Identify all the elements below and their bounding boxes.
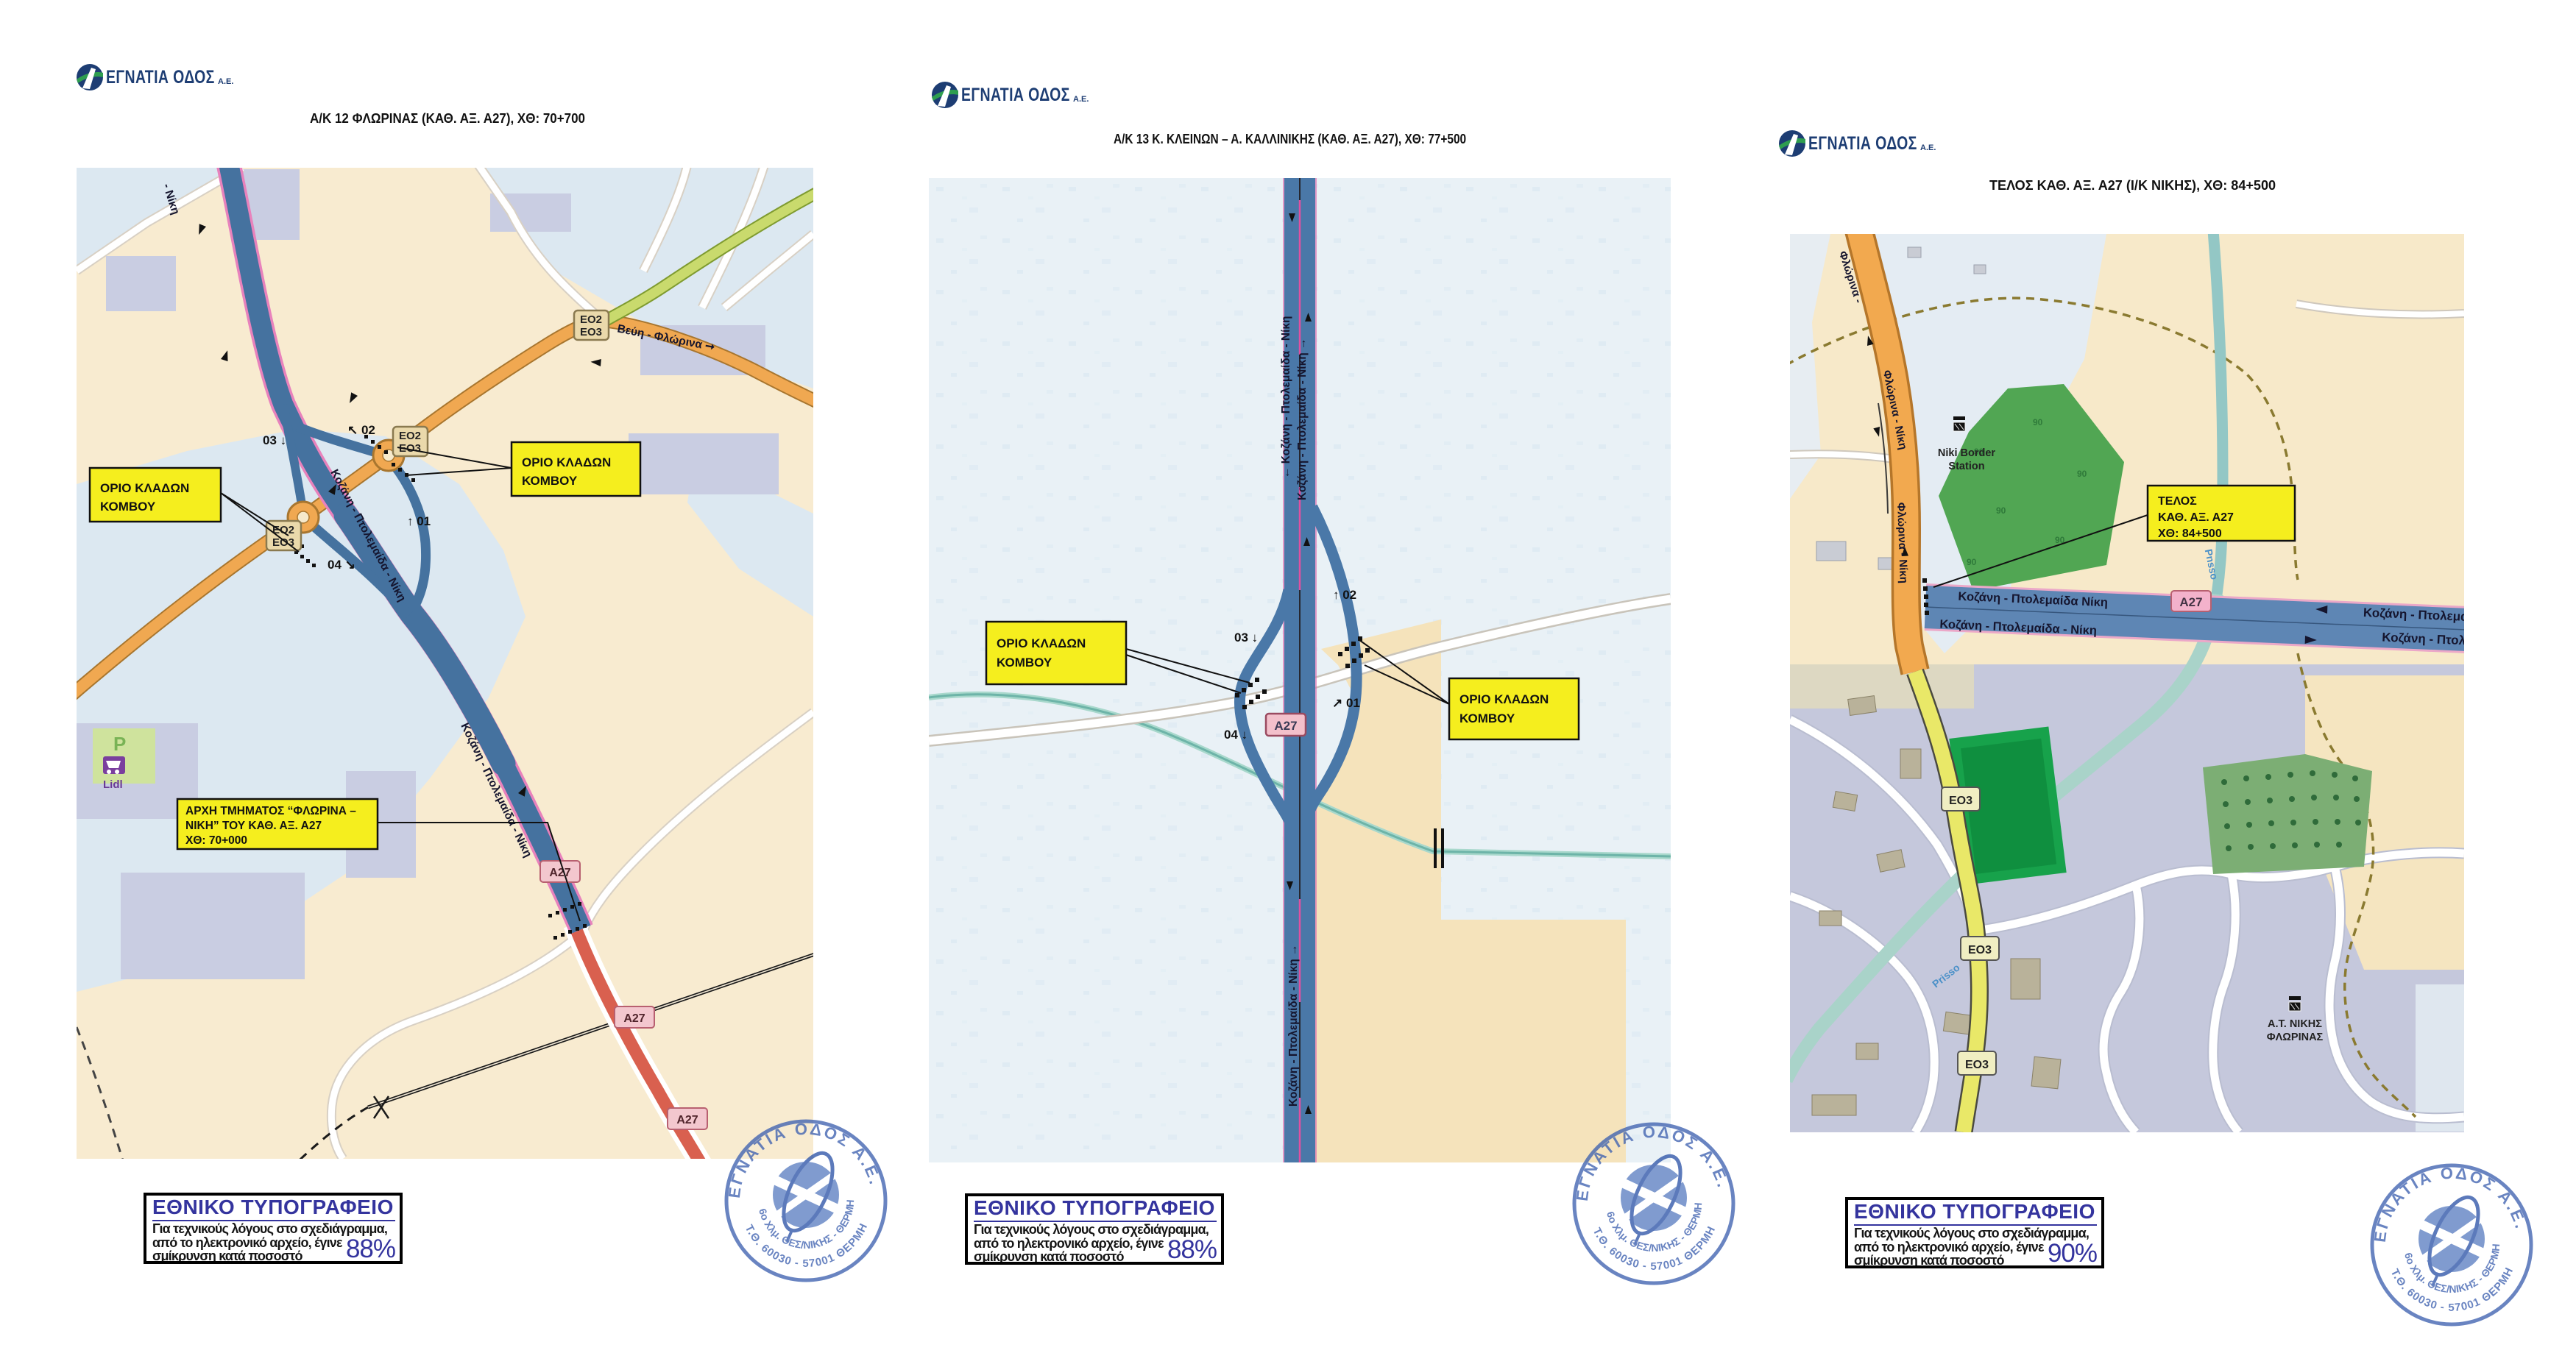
svg-text:Station: Station (1948, 461, 1984, 472)
svg-text:ΕΟ3: ΕΟ3 (272, 536, 294, 549)
svg-text:Κοζάνη - Πτολεμαίδα - Νίκη →: Κοζάνη - Πτολεμαίδα - Νίκη → (1287, 944, 1300, 1107)
svg-text:Κοζάνη - Πτολεμαίδα - Νίκη →: Κοζάνη - Πτολεμαίδα - Νίκη → (1296, 338, 1309, 500)
svg-text:ΚΟΜΒΟΥ: ΚΟΜΒΟΥ (100, 500, 156, 514)
svg-text:Α27: Α27 (1274, 719, 1297, 733)
svg-text:Α.Ε.: Α.Ε. (1920, 143, 1936, 152)
svg-text:ΕΟ3: ΕΟ3 (580, 326, 602, 338)
svg-text:ΝΙΚΗ” ΤΟΥ ΚΑΘ. ΑΞ. Α27: ΝΙΚΗ” ΤΟΥ ΚΑΘ. ΑΞ. Α27 (185, 820, 322, 832)
svg-text:P: P (113, 733, 126, 755)
svg-text:ΚΟΜΒΟΥ: ΚΟΜΒΟΥ (1459, 711, 1515, 725)
svg-text:ΧΘ: 84+500: ΧΘ: 84+500 (2158, 528, 2222, 540)
svg-text:Niki Border: Niki Border (1938, 447, 1996, 459)
svg-text:ΚΟΜΒΟΥ: ΚΟΜΒΟΥ (522, 474, 578, 488)
svg-text:ΕΟ3: ΕΟ3 (1965, 1059, 1989, 1071)
svg-text:ΕΓΝΑΤΙΑ ΟΔΟΣ: ΕΓΝΑΤΙΑ ΟΔΟΣ (1808, 133, 1917, 154)
svg-text:ΕΟ2: ΕΟ2 (399, 430, 421, 442)
svg-text:ΟΡΙΟ ΚΛΑΔΩΝ: ΟΡΙΟ ΚΛΑΔΩΝ (522, 455, 611, 469)
svg-text:ΕΓΝΑΤΙΑ ΟΔΟΣ: ΕΓΝΑΤΙΑ ΟΔΟΣ (961, 85, 1070, 105)
svg-text:ΕΟ3: ΕΟ3 (1949, 795, 1972, 807)
svg-text:04 ↘: 04 ↘ (328, 558, 355, 572)
svg-text:ΧΘ: 70+000: ΧΘ: 70+000 (185, 834, 247, 847)
svg-text:Α27: Α27 (2179, 595, 2202, 609)
svg-text:ΚΟΜΒΟΥ: ΚΟΜΒΟΥ (997, 656, 1052, 670)
svg-text:ΕΟ3: ΕΟ3 (1968, 944, 1992, 956)
svg-text:ΕΓΝΑΤΙΑ ΟΔΟΣ: ΕΓΝΑΤΙΑ ΟΔΟΣ (106, 67, 215, 88)
svg-text:Α27: Α27 (623, 1012, 645, 1025)
svg-text:↗ 01: ↗ 01 (1332, 696, 1360, 710)
svg-text:03 ↓: 03 ↓ (263, 433, 286, 447)
svg-text:90: 90 (2033, 417, 2043, 427)
svg-text:Α.Ε.: Α.Ε. (1073, 95, 1089, 104)
svg-text:90: 90 (2077, 469, 2087, 479)
svg-text:ΟΡΙΟ ΚΛΑΔΩΝ: ΟΡΙΟ ΚΛΑΔΩΝ (1459, 692, 1549, 706)
svg-text:Α27: Α27 (676, 1114, 698, 1126)
svg-text:Α27: Α27 (549, 867, 570, 879)
svg-text:90: 90 (1967, 557, 1977, 567)
svg-text:↑ 01: ↑ 01 (407, 514, 431, 528)
svg-text:ΦΛΩΡΙΝΑΣ: ΦΛΩΡΙΝΑΣ (2267, 1032, 2324, 1043)
svg-text:90: 90 (1996, 505, 2006, 516)
svg-text:ΑΡΧΗ ΤΜΗΜΑΤΟΣ “ΦΛΩΡΙΝΑ –: ΑΡΧΗ ΤΜΗΜΑΤΟΣ “ΦΛΩΡΙΝΑ – (185, 805, 356, 817)
svg-text:ΟΡΙΟ ΚΛΑΔΩΝ: ΟΡΙΟ ΚΛΑΔΩΝ (997, 636, 1086, 650)
svg-text:↑ 02: ↑ 02 (1333, 588, 1356, 602)
svg-text:ΚΑΘ. ΑΞ. Α27: ΚΑΘ. ΑΞ. Α27 (2158, 511, 2234, 524)
svg-text:04 ↓: 04 ↓ (1224, 728, 1248, 742)
svg-text:Α.Τ. ΝΙΚΗΣ: Α.Τ. ΝΙΚΗΣ (2268, 1018, 2322, 1030)
svg-text:ΟΡΙΟ ΚΛΑΔΩΝ: ΟΡΙΟ ΚΛΑΔΩΝ (100, 481, 189, 495)
svg-text:03 ↓: 03 ↓ (1234, 631, 1258, 645)
svg-text:Lidl: Lidl (103, 778, 123, 791)
svg-text:← Κοζάνη - Πτολεμαίδα - Νίκη: ← Κοζάνη - Πτολεμαίδα - Νίκη (1280, 316, 1292, 478)
svg-text:↖ 02: ↖ 02 (347, 423, 375, 437)
svg-text:ΕΟ2: ΕΟ2 (580, 313, 602, 326)
svg-text:Α.Ε.: Α.Ε. (218, 77, 233, 86)
svg-text:ΤΕΛΟΣ: ΤΕΛΟΣ (2158, 495, 2197, 508)
